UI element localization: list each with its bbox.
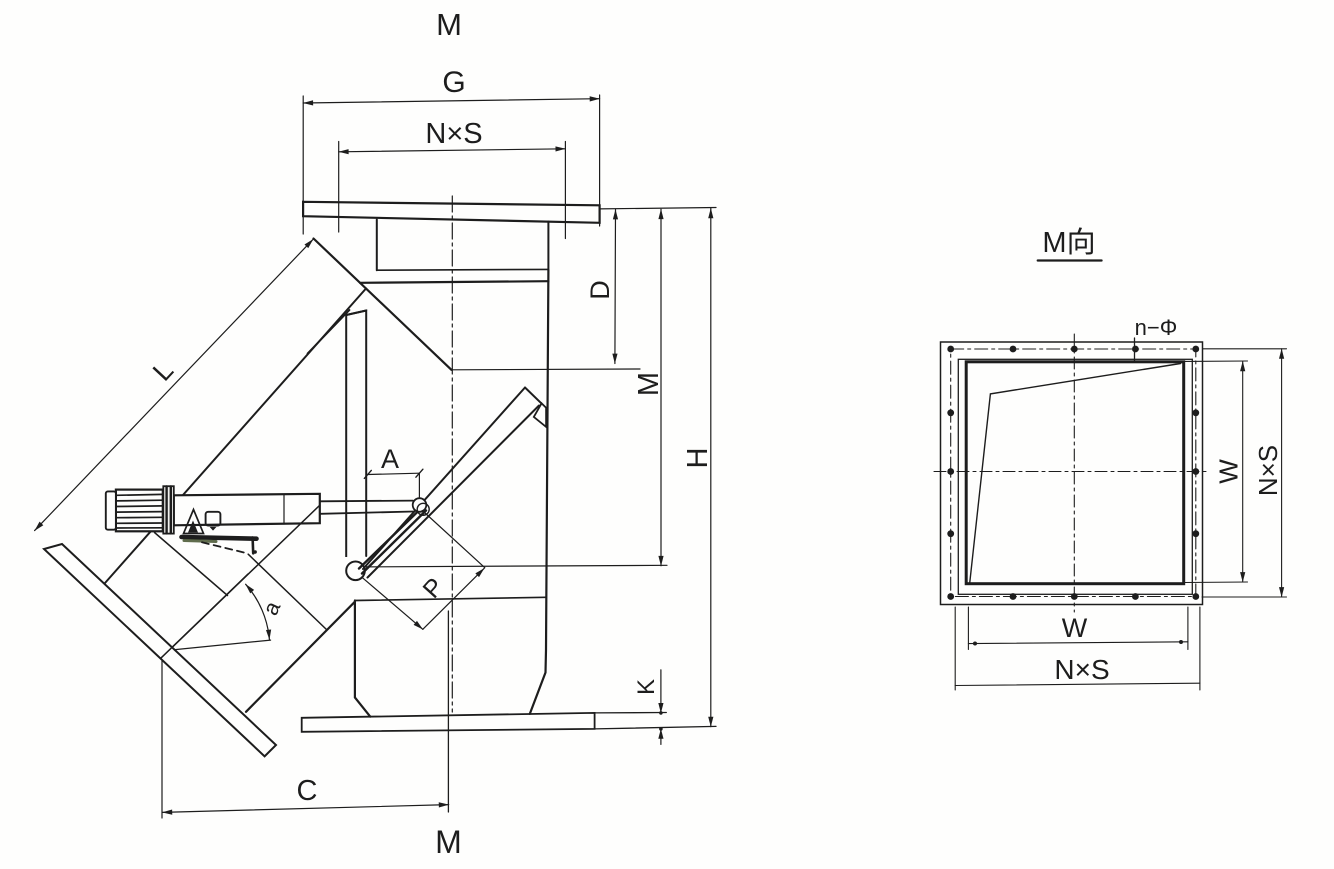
- svg-text:M向: M向: [1042, 226, 1095, 259]
- svg-text:M: M: [435, 824, 462, 860]
- svg-text:M: M: [436, 7, 462, 42]
- svg-text:C: C: [297, 775, 318, 807]
- svg-text:N×S: N×S: [425, 118, 482, 150]
- svg-text:W: W: [1062, 613, 1088, 643]
- svg-text:W: W: [1214, 459, 1244, 484]
- svg-text:D: D: [585, 280, 615, 300]
- svg-text:K: K: [633, 679, 660, 695]
- svg-text:L: L: [147, 355, 179, 386]
- svg-text:H: H: [682, 448, 714, 469]
- svg-text:N×S: N×S: [1054, 654, 1109, 685]
- svg-text:A: A: [381, 444, 399, 474]
- svg-text:n−Φ: n−Φ: [1135, 315, 1178, 340]
- svg-text:N×S: N×S: [1253, 445, 1283, 496]
- svg-text:a: a: [258, 597, 286, 619]
- svg-text:M: M: [633, 372, 665, 396]
- svg-text:G: G: [442, 66, 465, 99]
